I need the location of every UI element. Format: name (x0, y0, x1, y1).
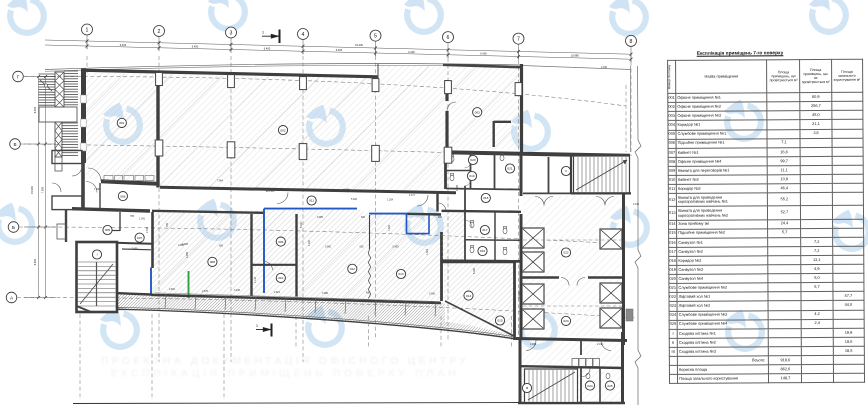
svg-text:5.184: 5.184 (300, 221, 303, 228)
svg-text:020: 020 (470, 158, 475, 162)
svg-text:Б: Б (12, 225, 15, 230)
svg-text:2.180: 2.180 (456, 184, 459, 191)
svg-text:ПРОЕКТНА ДОКУМЕНТАЦІЯ ОФІСНОГО: ПРОЕКТНА ДОКУМЕНТАЦІЯ ОФІСНОГО ЦЕНТРУ (101, 355, 469, 367)
svg-text:10.880: 10.880 (571, 54, 579, 58)
svg-text:8.000: 8.000 (473, 267, 476, 274)
svg-text:14.286: 14.286 (342, 189, 350, 192)
svg-text:3.965: 3.965 (429, 293, 436, 296)
svg-text:7.990: 7.990 (94, 188, 101, 191)
svg-text:016: 016 (480, 249, 485, 253)
svg-text:600: 600 (361, 216, 366, 219)
svg-text:003: 003 (475, 110, 480, 114)
svg-text:2.177: 2.177 (409, 194, 416, 197)
svg-text:022: 022 (563, 251, 568, 255)
svg-text:6.400: 6.400 (408, 50, 415, 54)
svg-text:2.602: 2.602 (169, 288, 176, 291)
svg-text:002: 002 (280, 128, 285, 132)
svg-text:4: 4 (302, 32, 305, 38)
svg-text:017: 017 (482, 228, 487, 232)
svg-text:9.985: 9.985 (317, 216, 324, 219)
svg-text:II: II (565, 169, 567, 173)
svg-text:6.400: 6.400 (192, 45, 199, 49)
svg-text:6.400: 6.400 (264, 46, 271, 50)
svg-text:3.196: 3.196 (234, 289, 241, 292)
svg-text:6.400: 6.400 (336, 48, 343, 52)
svg-text:III: III (526, 386, 529, 390)
svg-text:4.140: 4.140 (254, 276, 257, 283)
svg-text:025: 025 (607, 384, 612, 388)
svg-text:019: 019 (469, 174, 474, 178)
svg-text:009: 009 (278, 240, 283, 244)
svg-text:1: 1 (256, 323, 259, 328)
svg-text:785: 785 (130, 215, 135, 218)
svg-text:006: 006 (120, 194, 125, 198)
svg-text:021: 021 (507, 167, 512, 171)
svg-text:8: 8 (630, 39, 633, 45)
svg-text:001: 001 (119, 121, 124, 125)
svg-text:4.284: 4.284 (308, 239, 311, 246)
svg-text:3.900: 3.900 (186, 251, 189, 258)
svg-text:6.400: 6.400 (480, 52, 487, 56)
svg-text:600: 600 (219, 245, 224, 248)
svg-text:7.390: 7.390 (41, 186, 45, 193)
svg-text:2.186: 2.186 (530, 343, 537, 346)
svg-text:43.400: 43.400 (355, 43, 363, 47)
svg-text:1.520: 1.520 (426, 248, 429, 255)
svg-text:600: 600 (438, 216, 443, 219)
svg-text:В: В (13, 142, 16, 147)
svg-text:2.190: 2.190 (597, 343, 604, 346)
svg-text:6.460: 6.460 (33, 258, 37, 265)
svg-text:011: 011 (309, 199, 314, 203)
svg-text:19.900: 19.900 (30, 185, 34, 193)
svg-text:5.626: 5.626 (351, 198, 358, 201)
svg-text:1: 1 (262, 30, 265, 35)
svg-text:023: 023 (563, 319, 568, 323)
svg-text:I: I (97, 253, 98, 257)
svg-text:6: 6 (447, 35, 450, 41)
svg-text:015: 015 (497, 319, 502, 323)
svg-text:6.400: 6.400 (120, 43, 127, 47)
svg-text:1: 1 (86, 27, 89, 33)
svg-text:013: 013 (398, 272, 403, 276)
svg-text:018: 018 (483, 196, 488, 200)
svg-text:1.520: 1.520 (388, 224, 391, 231)
svg-text:005: 005 (105, 228, 110, 232)
svg-text:600: 600 (360, 246, 365, 249)
svg-text:2.186: 2.186 (601, 66, 608, 69)
svg-text:400: 400 (366, 292, 371, 295)
svg-text:2: 2 (158, 29, 161, 35)
svg-text:1.770 440: 1.770 440 (518, 290, 521, 301)
svg-text:1.254: 1.254 (387, 199, 394, 202)
svg-text:007: 007 (137, 236, 142, 240)
svg-text:024: 024 (587, 384, 592, 388)
svg-text:5: 5 (374, 34, 377, 40)
svg-text:3.985: 3.985 (322, 292, 329, 295)
svg-text:ЕКСПЛІКАЦІЯ ПРИМІЩЕНЬ ПОВЕРХУ: ЕКСПЛІКАЦІЯ ПРИМІЩЕНЬ ПОВЕРХУ ПЛАН (110, 368, 459, 380)
svg-text:2.821: 2.821 (274, 291, 281, 294)
svg-text:008: 008 (210, 260, 215, 264)
svg-text:3: 3 (230, 30, 233, 36)
svg-text:7: 7 (517, 37, 520, 43)
svg-text:010: 010 (278, 276, 283, 280)
svg-text:7.964: 7.964 (217, 180, 224, 183)
svg-text:012: 012 (350, 267, 355, 271)
svg-text:014: 014 (466, 294, 471, 298)
svg-text:2.190: 2.190 (633, 203, 640, 206)
svg-text:3.900: 3.900 (325, 246, 332, 249)
svg-text:3.965: 3.965 (182, 243, 189, 246)
svg-text:2.600: 2.600 (132, 248, 139, 251)
svg-text:2.340: 2.340 (146, 226, 149, 233)
svg-text:1.341: 1.341 (139, 218, 146, 221)
svg-text:2.675: 2.675 (202, 290, 209, 293)
svg-text:6.450: 6.450 (33, 106, 37, 113)
svg-text:5.400: 5.400 (393, 246, 400, 249)
svg-text:700: 700 (166, 222, 169, 227)
svg-text:949 500: 949 500 (266, 190, 275, 193)
